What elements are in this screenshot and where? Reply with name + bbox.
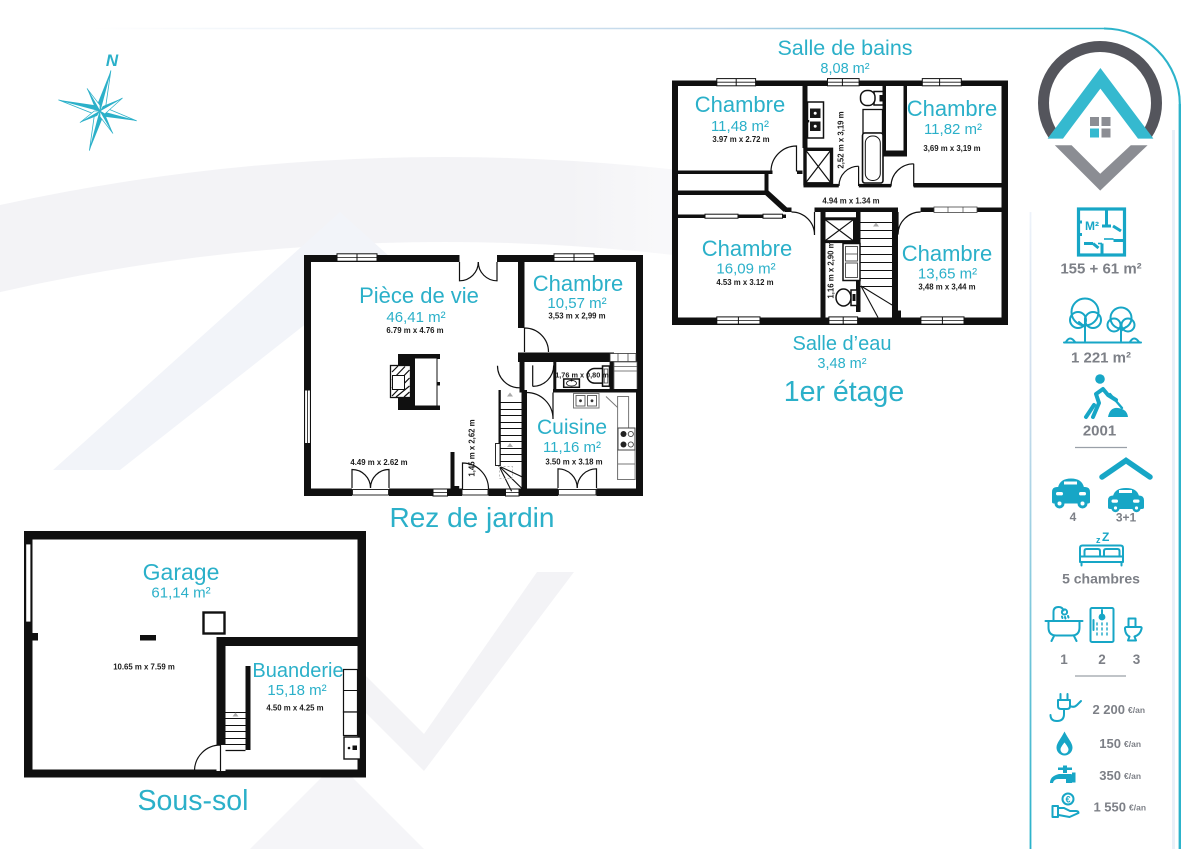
svg-text:€/an: €/an xyxy=(1129,803,1146,813)
svg-text:4.50 m x 4.25 m: 4.50 m x 4.25 m xyxy=(266,704,323,713)
svg-text:3,48 m²: 3,48 m² xyxy=(817,356,866,372)
svg-text:3,69 m x 3,19 m: 3,69 m x 3,19 m xyxy=(923,144,980,153)
svg-text:Chambre: Chambre xyxy=(907,96,997,121)
svg-text:1,45 m x 2,62 m: 1,45 m x 2,62 m xyxy=(468,419,477,476)
svg-text:Z: Z xyxy=(1102,530,1109,544)
svg-text:3.50 m x 3.18 m: 3.50 m x 3.18 m xyxy=(545,458,602,467)
svg-text:z: z xyxy=(1096,535,1101,545)
svg-text:46,41 m²: 46,41 m² xyxy=(386,309,445,326)
svg-text:2: 2 xyxy=(1098,652,1106,667)
svg-text:2001: 2001 xyxy=(1083,423,1116,440)
svg-text:1: 1 xyxy=(1060,652,1068,667)
svg-text:4: 4 xyxy=(1070,510,1077,524)
svg-text:€: € xyxy=(1065,795,1070,805)
svg-text:61,14 m²: 61,14 m² xyxy=(151,585,210,602)
svg-text:2 200: 2 200 xyxy=(1092,702,1125,717)
svg-text:11,82 m²: 11,82 m² xyxy=(924,121,982,138)
svg-text:Salle de bains: Salle de bains xyxy=(777,36,912,60)
svg-text:€/an: €/an xyxy=(1124,739,1141,749)
svg-text:11,48 m²: 11,48 m² xyxy=(711,118,769,135)
svg-text:1 221 m²: 1 221 m² xyxy=(1071,350,1131,367)
svg-text:Chambre: Chambre xyxy=(902,241,992,266)
svg-text:1 550: 1 550 xyxy=(1093,800,1126,815)
svg-text:11,16 m²: 11,16 m² xyxy=(543,439,601,456)
svg-text:16,09 m²: 16,09 m² xyxy=(716,261,775,278)
svg-text:Rez de jardin: Rez de jardin xyxy=(390,502,555,533)
svg-text:4.49 m x 2.62 m: 4.49 m x 2.62 m xyxy=(350,458,407,467)
svg-text:Garage: Garage xyxy=(143,559,220,585)
svg-text:150: 150 xyxy=(1099,736,1121,751)
svg-text:6.79 m x 4.76 m: 6.79 m x 4.76 m xyxy=(386,326,443,335)
svg-text:1,76 m x 0,80 m: 1,76 m x 0,80 m xyxy=(555,371,609,380)
svg-text:N: N xyxy=(106,51,119,70)
svg-text:5 chambres: 5 chambres xyxy=(1062,571,1140,587)
svg-text:3+1: 3+1 xyxy=(1116,511,1137,525)
svg-text:€/an: €/an xyxy=(1128,705,1145,715)
svg-text:3,48 m x 3,44 m: 3,48 m x 3,44 m xyxy=(918,283,975,292)
svg-text:155 + 61 m²: 155 + 61 m² xyxy=(1060,261,1141,278)
svg-text:Salle d’eau: Salle d’eau xyxy=(793,333,892,355)
svg-text:M²: M² xyxy=(1085,219,1099,233)
svg-text:Cuisine: Cuisine xyxy=(537,416,607,439)
svg-text:3.97 m x 2.72 m: 3.97 m x 2.72 m xyxy=(712,135,769,144)
svg-text:2,52 m x 3,19 m: 2,52 m x 3,19 m xyxy=(837,111,846,168)
svg-text:13,65 m²: 13,65 m² xyxy=(918,266,977,283)
svg-text:3,53 m x 2,99 m: 3,53 m x 2,99 m xyxy=(548,312,605,321)
svg-text:Chambre: Chambre xyxy=(533,271,623,296)
svg-text:4.94 m x 1.34 m: 4.94 m x 1.34 m xyxy=(822,197,879,206)
svg-text:€/an: €/an xyxy=(1124,771,1141,781)
svg-text:10,57 m²: 10,57 m² xyxy=(547,295,606,312)
svg-text:3: 3 xyxy=(1133,652,1141,667)
svg-text:Pièce de vie: Pièce de vie xyxy=(359,283,479,308)
svg-text:1,16 m x 2,90 m: 1,16 m x 2,90 m xyxy=(827,241,836,298)
svg-text:4.53 m x 3.12 m: 4.53 m x 3.12 m xyxy=(716,278,773,287)
svg-text:1er étage: 1er étage xyxy=(784,376,904,408)
svg-text:15,18 m²: 15,18 m² xyxy=(267,682,326,699)
svg-text:Sous-sol: Sous-sol xyxy=(138,785,249,817)
svg-text:350: 350 xyxy=(1099,768,1121,783)
svg-text:Chambre: Chambre xyxy=(702,236,792,261)
svg-text:10.65 m x 7.59 m: 10.65 m x 7.59 m xyxy=(113,663,175,672)
svg-text:Buanderie: Buanderie xyxy=(252,660,343,682)
svg-text:8,08 m²: 8,08 m² xyxy=(820,61,869,77)
svg-text:Chambre: Chambre xyxy=(695,92,785,117)
